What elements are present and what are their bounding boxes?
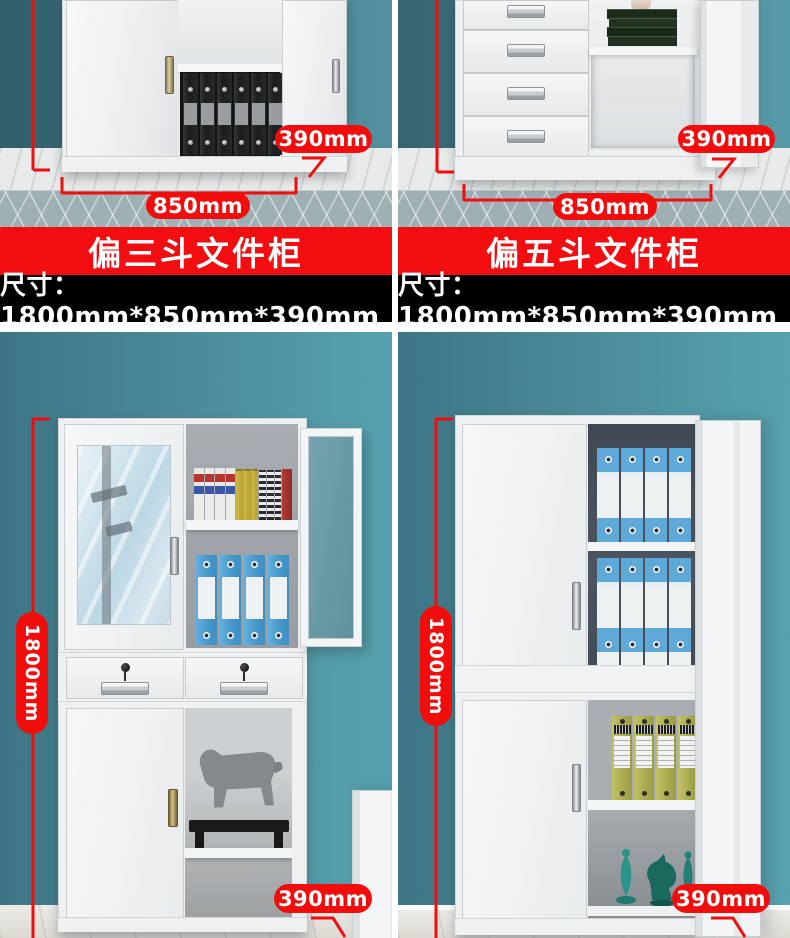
drawer [463, 73, 589, 116]
door-handle [170, 537, 179, 575]
olive-binder [634, 716, 654, 800]
drawer [185, 657, 303, 699]
open-compartment [186, 424, 298, 648]
book-stack [607, 9, 677, 47]
blue-binder [597, 558, 619, 666]
width-dimension-badge: 850mm [553, 193, 657, 220]
shelf [186, 520, 298, 530]
cabinet-plinth [455, 156, 715, 180]
height-dimension-badge: 1800mm [420, 606, 452, 726]
blue-binder [669, 558, 691, 666]
shelf [185, 848, 292, 858]
cabinet-body [455, 415, 700, 935]
drawer-handle [507, 130, 545, 143]
depth-dimension-badge: 390mm [678, 125, 775, 153]
drawer-handle [101, 682, 149, 695]
drawer-handle [220, 682, 268, 695]
blue-binder [669, 448, 691, 542]
drawer-handle [507, 87, 545, 100]
blue-binder [621, 448, 643, 542]
binder-shelf [180, 72, 280, 156]
shelf [588, 542, 698, 551]
door-handle [165, 56, 174, 94]
olive-binder-row [612, 716, 698, 800]
glass-pane [308, 436, 354, 639]
black-binder [251, 73, 266, 155]
product-dimensions: 尺寸：1800mm*850mm*390mm [398, 265, 790, 322]
lower-left-door [462, 700, 587, 932]
height-dimension-badge: 1800mm [16, 612, 48, 734]
cabinet-photo: 390mm 850mm [398, 0, 790, 227]
blue-binder [645, 558, 667, 666]
gold-door-handle [168, 789, 178, 827]
left-door [66, 0, 180, 160]
cabinet-plinth [62, 156, 347, 172]
black-binder [234, 73, 249, 155]
cabinet-photo: 1800mm 390mm [0, 332, 392, 938]
drawer-stack [463, 0, 589, 157]
black-bench [189, 820, 289, 832]
book-row [194, 468, 292, 520]
blue-binder-row [597, 558, 691, 668]
cabinet-photo: 1800mm 390mm [398, 332, 790, 938]
black-binder [217, 73, 232, 155]
olive-binder [612, 716, 632, 800]
depth-dimension-badge: 390mm [672, 884, 770, 913]
section-divider [455, 665, 700, 693]
cabinet-plinth [58, 917, 307, 932]
blue-binder [220, 555, 241, 645]
door-handle [572, 764, 581, 812]
blue-binder [244, 555, 265, 645]
blue-binder [268, 555, 289, 645]
drawer [463, 0, 589, 30]
door-handle [332, 59, 340, 93]
product-dimensions-bar: 尺寸：1800mm*850mm*390mm [398, 275, 790, 322]
keyhole-lock [240, 663, 249, 672]
depth-dimension-badge: 390mm [275, 125, 372, 153]
open-right-door [695, 420, 761, 937]
glass-door-closed [64, 424, 184, 650]
upper-interior [178, 0, 282, 64]
blue-binder [597, 448, 619, 542]
lower-open-door [352, 790, 392, 938]
blue-binder [645, 448, 667, 542]
blue-binder-row [196, 555, 289, 645]
product-dimensions-bar: 尺寸：1800mm*850mm*390mm [0, 275, 392, 322]
panel-three-drawer-cabinet: 390mm 850mm 偏三斗文件柜 尺寸：1800mm*850mm*390mm [0, 0, 392, 322]
panel-two-section-cabinet: 1800mm 390mm [398, 332, 790, 938]
upper-left-door [462, 424, 587, 670]
blue-binder [196, 555, 217, 645]
width-dimension-badge: 850mm [146, 192, 250, 219]
depth-dimension-badge: 390mm [274, 884, 372, 913]
cabinet-photo: 390mm 850mm [0, 0, 392, 227]
dog-statue [187, 736, 287, 824]
lower-left-door [66, 708, 184, 928]
cabinet-body [455, 0, 715, 180]
drawer [463, 30, 589, 73]
drawer-handle [507, 5, 545, 18]
cabinet-body [58, 418, 307, 932]
blue-binder-row [597, 448, 691, 542]
blue-binder [621, 558, 643, 666]
drawer-row [58, 652, 307, 702]
product-dimensions: 尺寸：1800mm*850mm*390mm [0, 265, 392, 322]
shelf [589, 47, 697, 55]
glass-pane [77, 445, 171, 625]
upper-open-compartment [588, 424, 698, 668]
glass-door-open [300, 428, 362, 647]
olive-binder [656, 716, 676, 800]
drawer [463, 116, 589, 159]
black-binder [200, 73, 215, 155]
cabinet-plinth [455, 918, 700, 935]
drawer-handle [507, 44, 545, 57]
drawer [66, 657, 184, 699]
panel-five-drawer-cabinet: 390mm 850mm 偏五斗文件柜 尺寸：1800mm*850mm*390mm [398, 0, 790, 322]
black-binder [183, 73, 198, 155]
shelf [588, 800, 698, 810]
open-compartment [178, 0, 282, 158]
panel-glass-door-cabinet: 1800mm 390mm [0, 332, 392, 938]
door-handle [572, 582, 581, 630]
product-spec-sheet: 390mm 850mm 偏三斗文件柜 尺寸：1800mm*850mm*390mm [0, 0, 790, 938]
keyhole-lock [121, 663, 130, 672]
